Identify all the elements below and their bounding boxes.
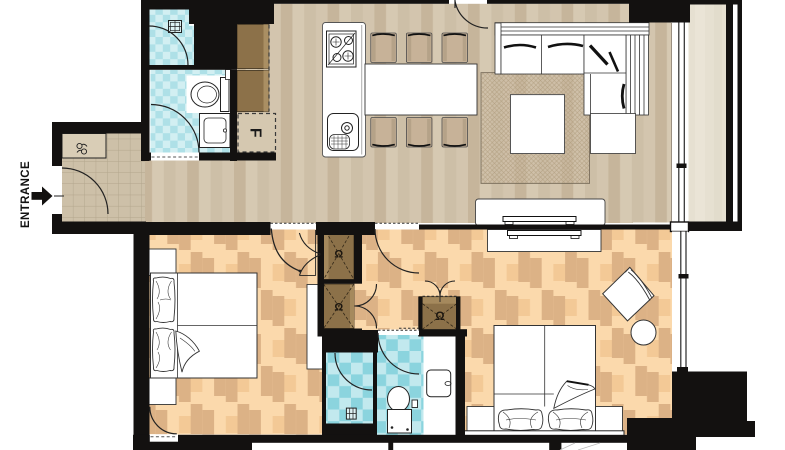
svg-text:ENTRANCE: ENTRANCE: [20, 161, 32, 228]
svg-text:F: F: [246, 128, 263, 137]
svg-text:Ω: Ω: [334, 302, 343, 314]
svg-text:Ω: Ω: [435, 311, 444, 323]
svg-text:Ω: Ω: [334, 249, 343, 261]
